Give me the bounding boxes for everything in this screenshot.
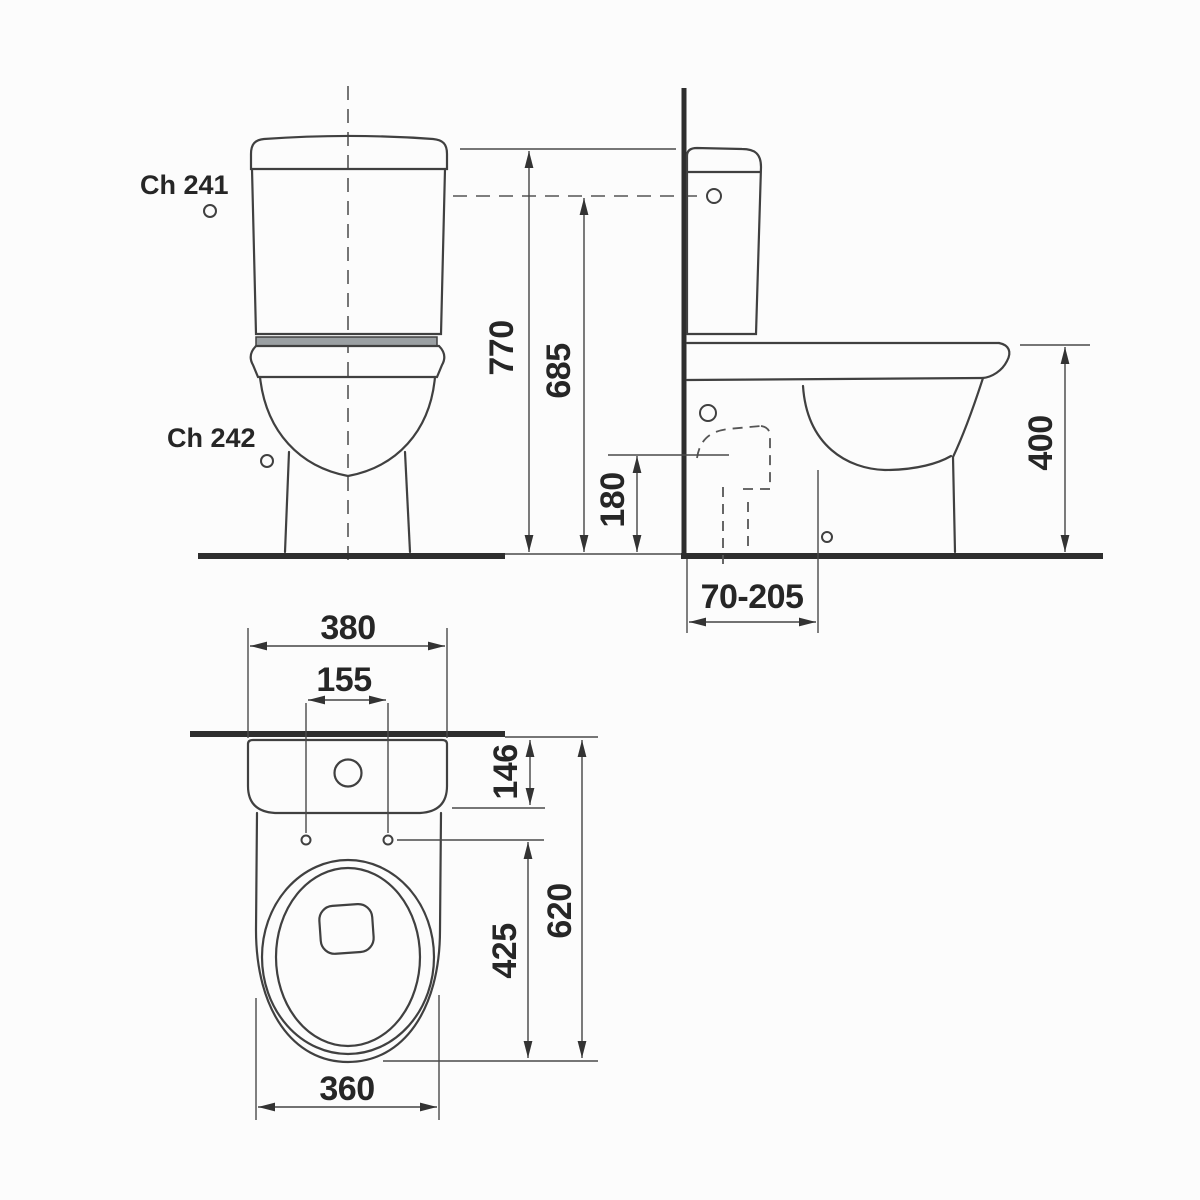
dim-label-770: 770 — [483, 320, 521, 375]
plan-bowl-body-outline — [256, 813, 441, 1062]
side-seat-underside — [687, 378, 983, 380]
dim-label-685: 685 — [540, 343, 578, 398]
dim-label-155: 155 — [316, 661, 371, 699]
ch242-marker-circle — [261, 455, 273, 467]
seat-fixing-hole-left — [302, 836, 311, 845]
dim-label-360: 360 — [319, 1070, 374, 1108]
plan-bowl-opening — [276, 868, 420, 1046]
technical-drawing-page: Ch 241 Ch 242 770 685 — [0, 0, 1200, 1200]
trap-dashed-right — [761, 426, 770, 489]
side-tank-hole — [707, 189, 721, 203]
side-inlet-hole — [700, 405, 716, 421]
front-cistern-lid — [251, 136, 447, 169]
ch241-marker-circle — [204, 205, 216, 217]
side-view: 180 400 70-205 — [594, 88, 1103, 633]
flush-button — [335, 760, 362, 787]
side-bowl-front — [953, 378, 983, 552]
trap-dashed-top — [697, 426, 761, 458]
front-pedestal-right — [405, 452, 410, 552]
toilet-dimension-drawing: Ch 241 Ch 242 770 685 — [0, 0, 1200, 1200]
side-fixing-hole — [822, 532, 832, 542]
side-bowl-underside — [803, 386, 951, 470]
front-pedestal-left — [285, 452, 289, 552]
dim-label-180: 180 — [594, 472, 632, 527]
dim-label-380: 380 — [320, 609, 375, 647]
side-cistern-outline — [687, 148, 761, 334]
dim-label-70-205: 70-205 — [701, 578, 804, 616]
dim-label-425: 425 — [486, 923, 524, 978]
front-seat-hinge-band — [256, 337, 437, 346]
product-code-ch241: Ch 241 — [140, 170, 229, 200]
plan-water-spot — [318, 903, 374, 955]
dim-label-146: 146 — [487, 744, 525, 799]
dim-label-400: 400 — [1022, 415, 1060, 470]
product-code-ch242: Ch 242 — [167, 423, 256, 453]
plan-view: 380 155 146 425 620 360 — [190, 609, 598, 1120]
side-seat-nose — [983, 343, 1009, 378]
plan-cistern-outline — [248, 740, 447, 813]
plan-seat-outer-ring — [262, 860, 434, 1054]
dim-label-620: 620 — [541, 883, 579, 938]
seat-fixing-hole-right — [384, 836, 393, 845]
